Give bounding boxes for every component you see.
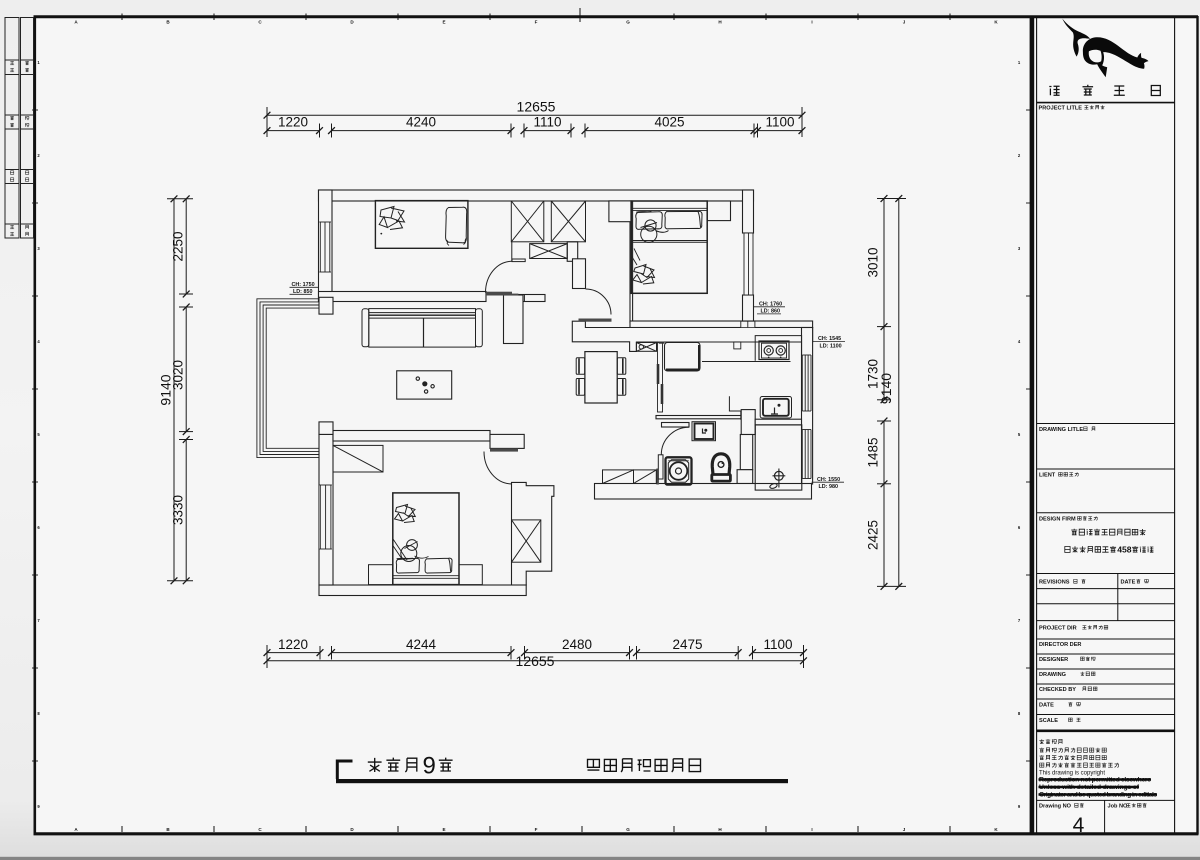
svg-text:E: E — [442, 20, 445, 25]
svg-text:J: J — [903, 20, 906, 25]
svg-text:4025: 4025 — [654, 114, 684, 129]
svg-text:F: F — [535, 827, 538, 832]
svg-text:DESIGNER: DESIGNER — [1039, 657, 1068, 663]
svg-text:I: I — [811, 20, 812, 25]
svg-text:1100: 1100 — [765, 114, 794, 129]
svg-text:1220: 1220 — [278, 637, 308, 652]
svg-text:3010: 3010 — [866, 247, 881, 277]
svg-text:DRAWING: DRAWING — [1039, 672, 1066, 678]
svg-text:Drawing NO: Drawing NO — [1039, 804, 1072, 810]
svg-text:DATE: DATE — [1121, 580, 1136, 586]
svg-text:12655: 12655 — [517, 99, 556, 115]
svg-text:2425: 2425 — [866, 520, 881, 550]
svg-text:J: J — [903, 827, 906, 832]
svg-text:2480: 2480 — [562, 637, 592, 652]
svg-text:E: E — [442, 827, 445, 832]
svg-text:DIRECTOR DER: DIRECTOR DER — [1039, 642, 1081, 648]
svg-text:1100: 1100 — [763, 637, 792, 652]
svg-text:F: F — [535, 20, 538, 25]
svg-text:DRAWING LITLE: DRAWING LITLE — [1039, 427, 1083, 433]
svg-text:LD: 1100: LD: 1100 — [820, 343, 842, 349]
svg-text:G: G — [626, 20, 630, 25]
svg-text:4: 4 — [1073, 814, 1085, 837]
svg-text:458: 458 — [1117, 544, 1132, 554]
svg-text:2475: 2475 — [672, 637, 702, 652]
svg-text:1485: 1485 — [866, 437, 881, 467]
svg-text:1110: 1110 — [533, 114, 561, 129]
svg-text:4240: 4240 — [406, 114, 436, 129]
svg-text:CHECKED BY: CHECKED BY — [1039, 687, 1076, 693]
svg-text:PROJECT DIR: PROJECT DIR — [1039, 626, 1077, 632]
svg-text:SCALE: SCALE — [1039, 718, 1058, 724]
svg-text:2250: 2250 — [171, 231, 186, 261]
svg-text:DATE: DATE — [1039, 703, 1054, 709]
svg-text:G: G — [626, 827, 630, 832]
svg-text:Job NO: Job NO — [1108, 804, 1129, 810]
svg-text:9140: 9140 — [158, 374, 174, 405]
svg-text:12655: 12655 — [516, 653, 555, 669]
svg-text:I: I — [811, 827, 812, 832]
svg-text:REVISIONS: REVISIONS — [1039, 580, 1070, 586]
svg-text:9140: 9140 — [878, 373, 894, 404]
svg-text:DESIGN FIRM: DESIGN FIRM — [1039, 517, 1076, 523]
svg-text:3330: 3330 — [171, 495, 186, 525]
svg-text:4244: 4244 — [406, 637, 437, 652]
svg-text:LIENT: LIENT — [1039, 473, 1056, 479]
svg-text:PROJECT LITLE: PROJECT LITLE — [1039, 106, 1083, 112]
svg-text:LD: 980: LD: 980 — [819, 484, 838, 490]
svg-text:9: 9 — [423, 753, 436, 780]
svg-text:1220: 1220 — [278, 114, 308, 129]
